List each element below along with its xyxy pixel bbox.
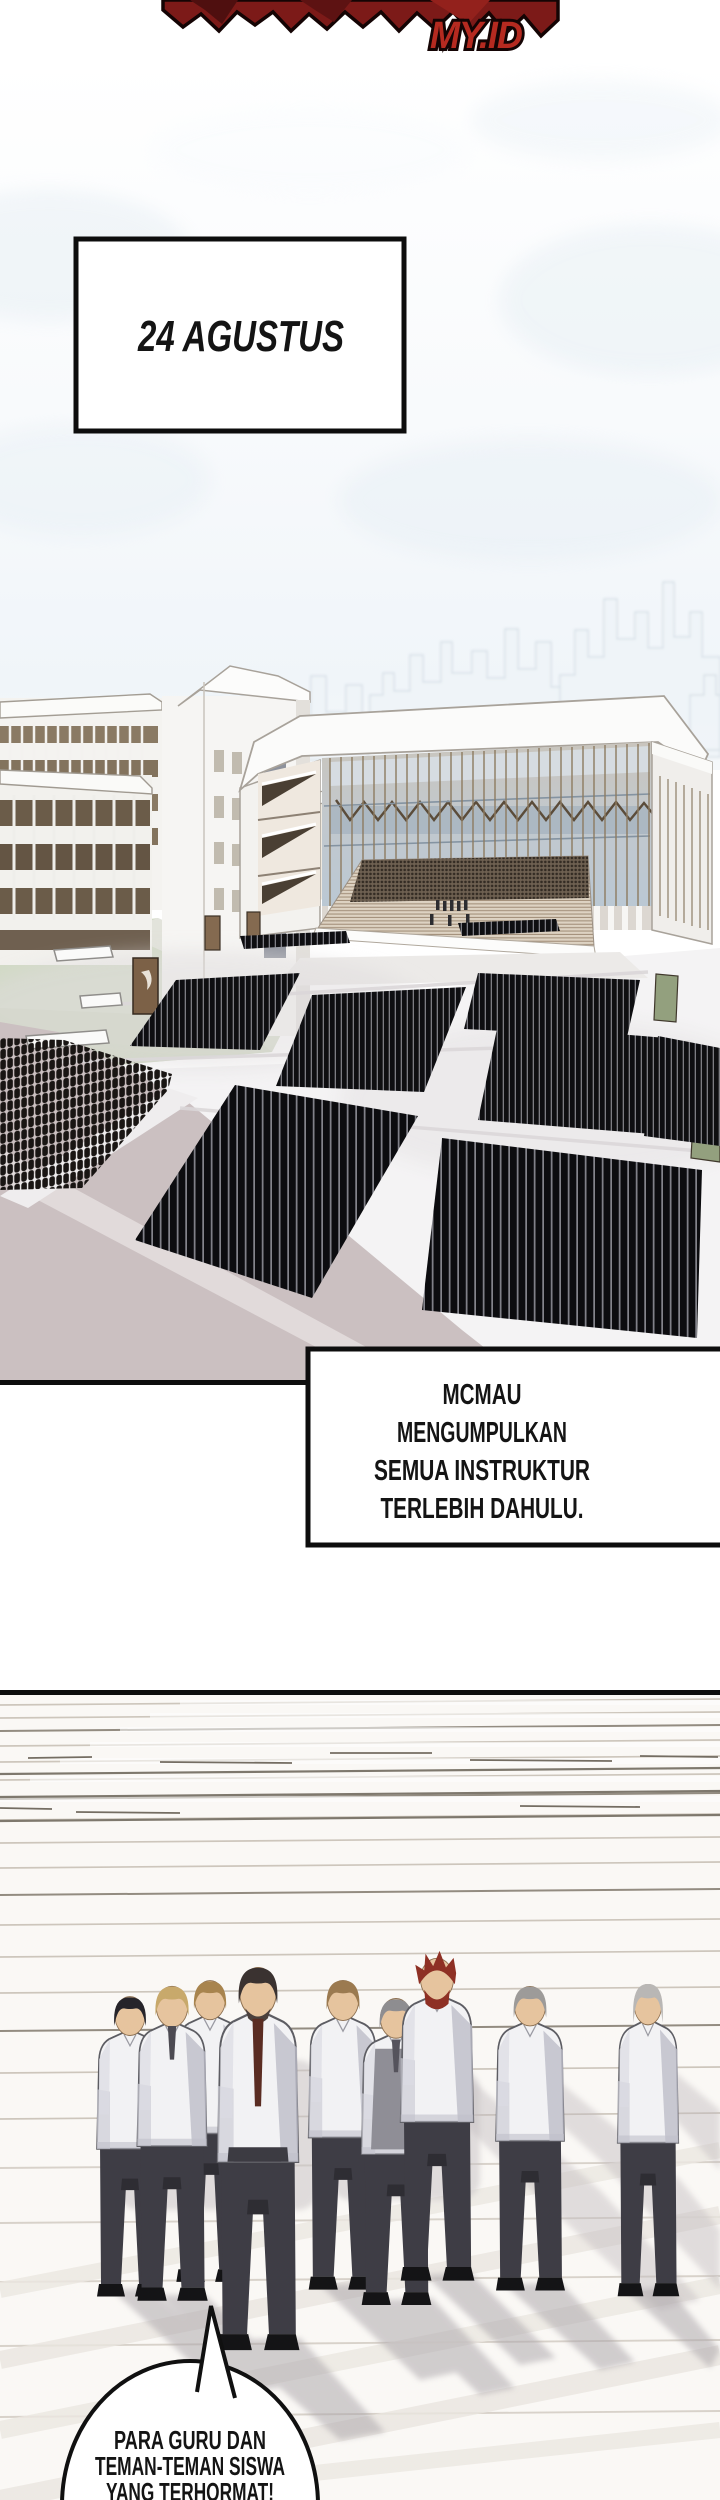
svg-text:MCMAU: MCMAU [443,1379,522,1411]
svg-text:MENGUMPULKAN: MENGUMPULKAN [397,1417,567,1449]
svg-text:YANG TERHORMAT!: YANG TERHORMAT! [106,2477,274,2500]
svg-text:TERLEBIH DAHULU.: TERLEBIH DAHULU. [381,1493,584,1525]
svg-text:MY.ID: MY.ID [430,15,523,57]
svg-text:24 AGUSTUS: 24 AGUSTUS [137,312,344,361]
svg-text:SEMUA INSTRUKTUR: SEMUA INSTRUKTUR [374,1455,590,1487]
